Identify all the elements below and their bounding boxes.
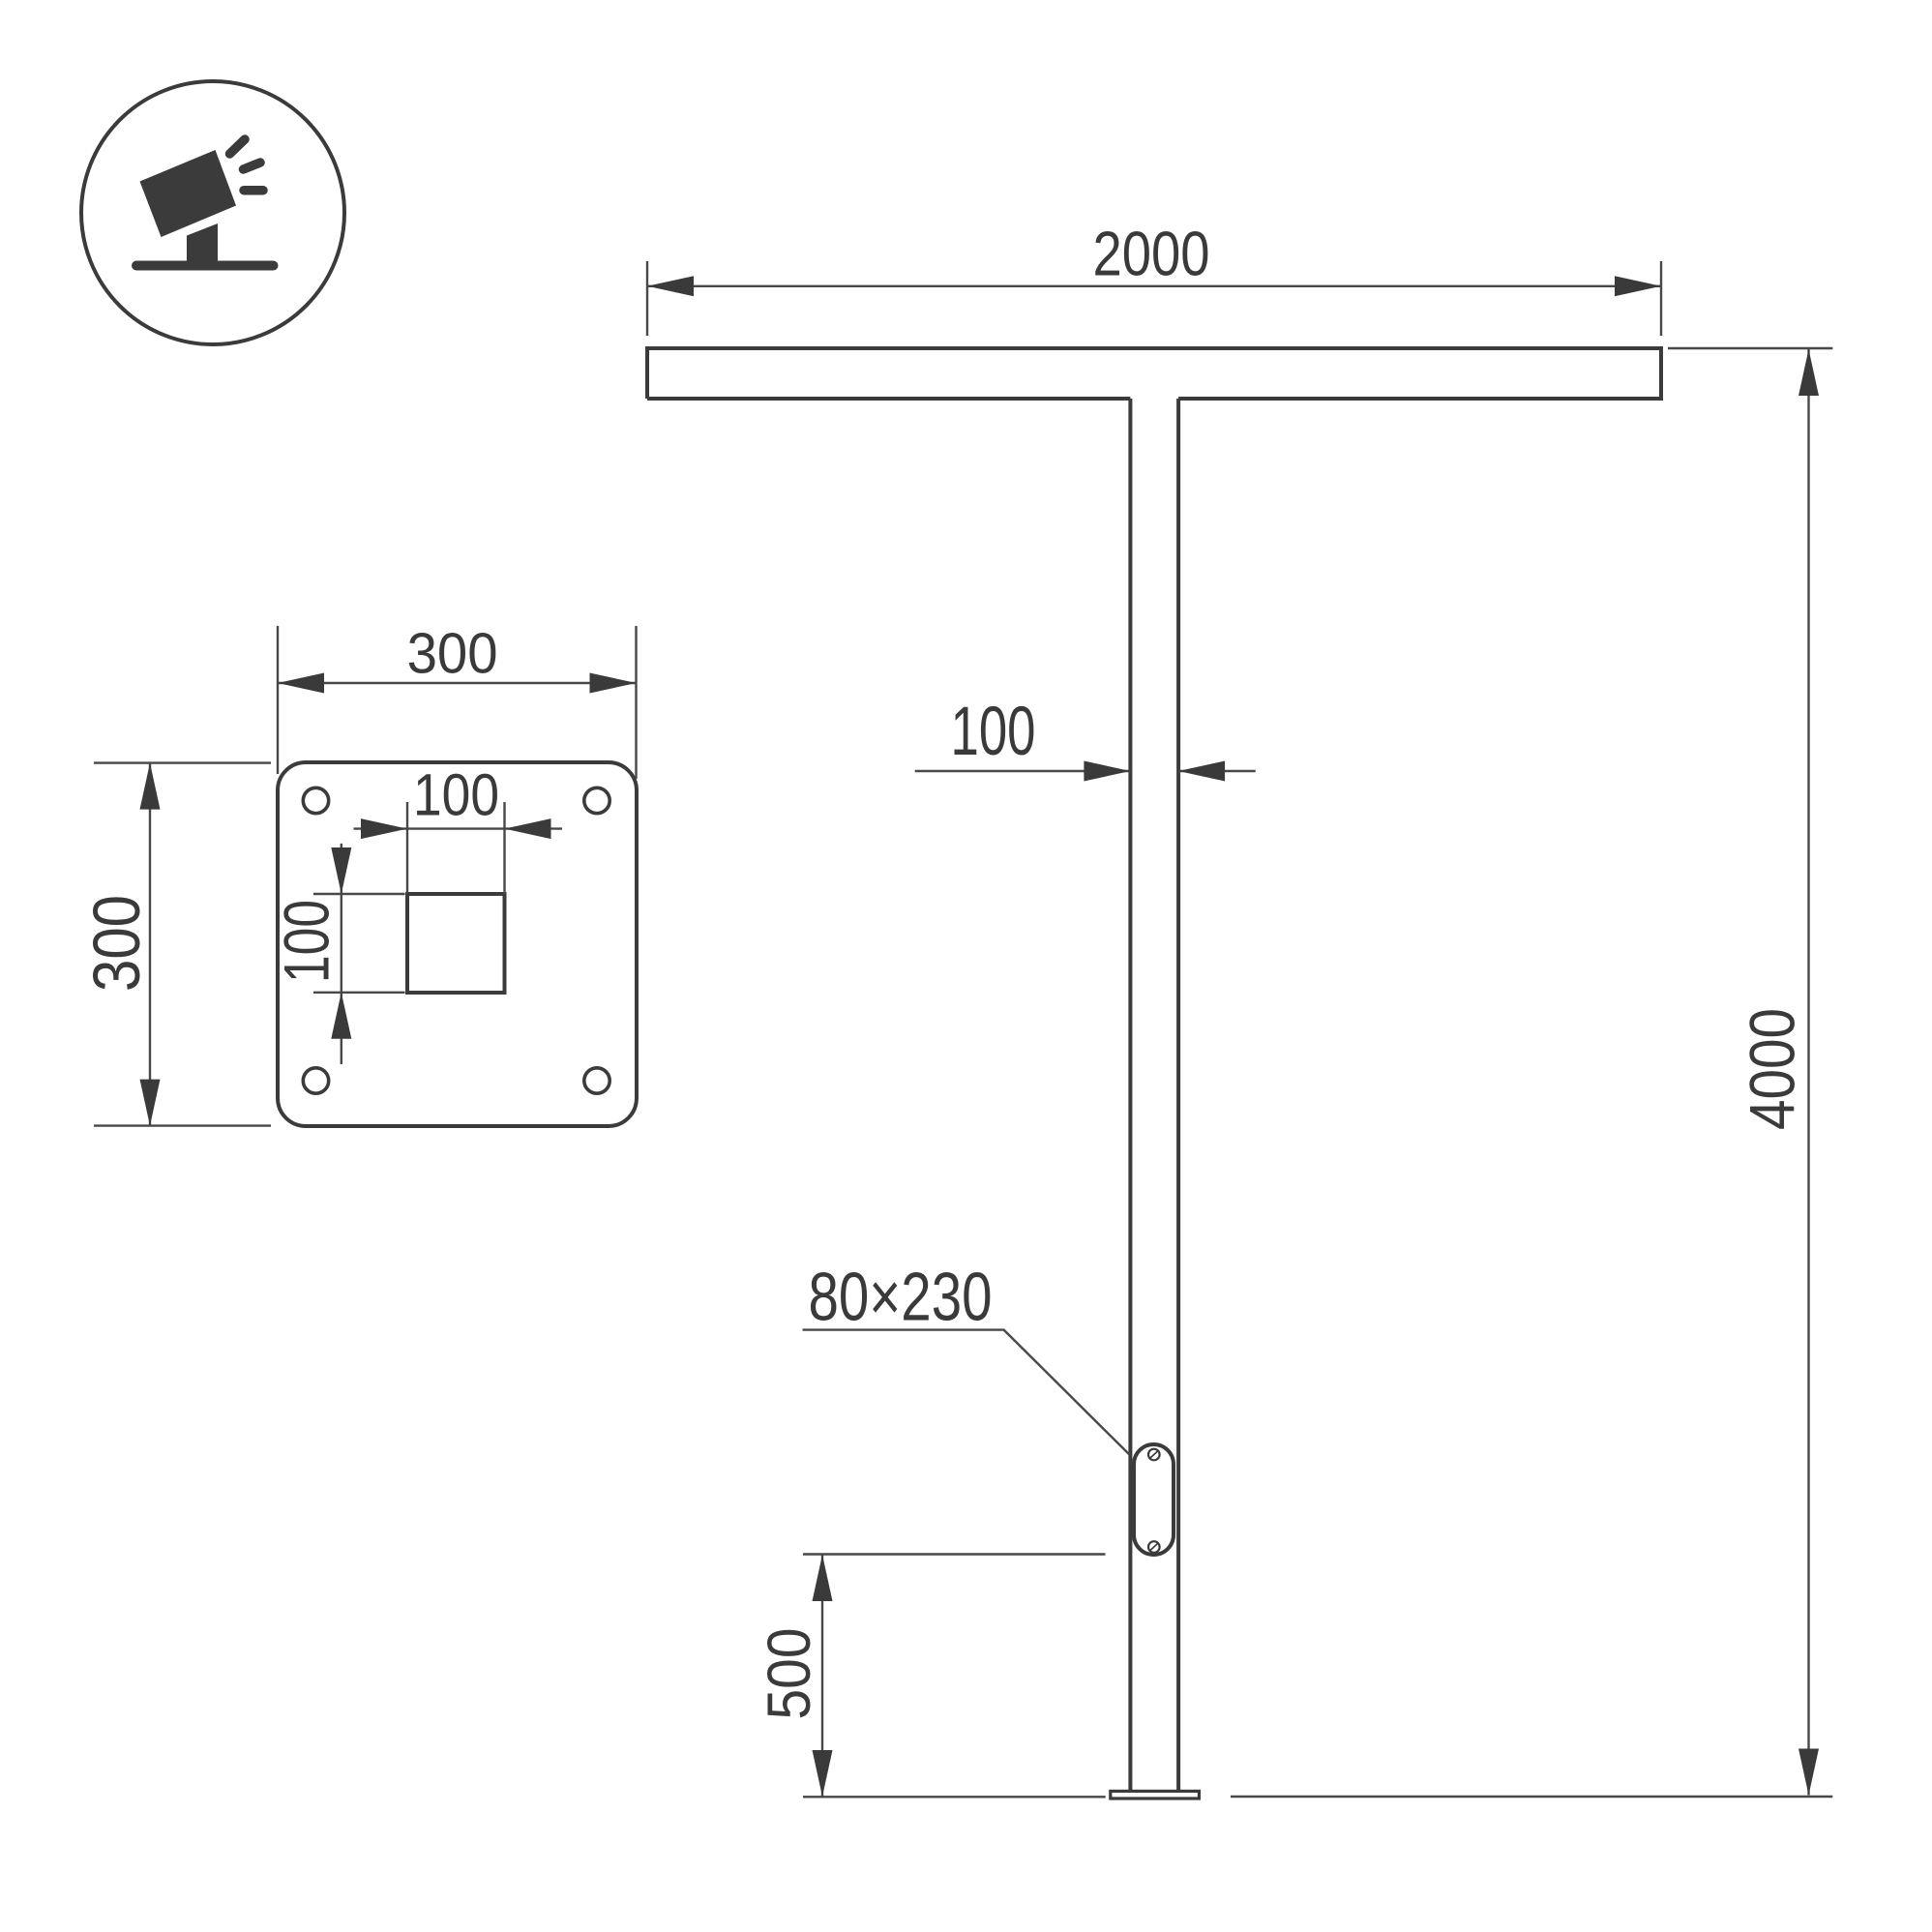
svg-text:100: 100 xyxy=(413,762,499,829)
svg-text:2000: 2000 xyxy=(1093,220,1210,289)
svg-text:300: 300 xyxy=(79,895,154,992)
svg-text:300: 300 xyxy=(407,621,498,686)
svg-text:100: 100 xyxy=(951,694,1036,770)
svg-text:500: 500 xyxy=(756,1628,823,1720)
svg-text:100: 100 xyxy=(271,900,342,983)
svg-text:4000: 4000 xyxy=(1737,1008,1807,1130)
svg-text:80×230: 80×230 xyxy=(809,1259,993,1335)
